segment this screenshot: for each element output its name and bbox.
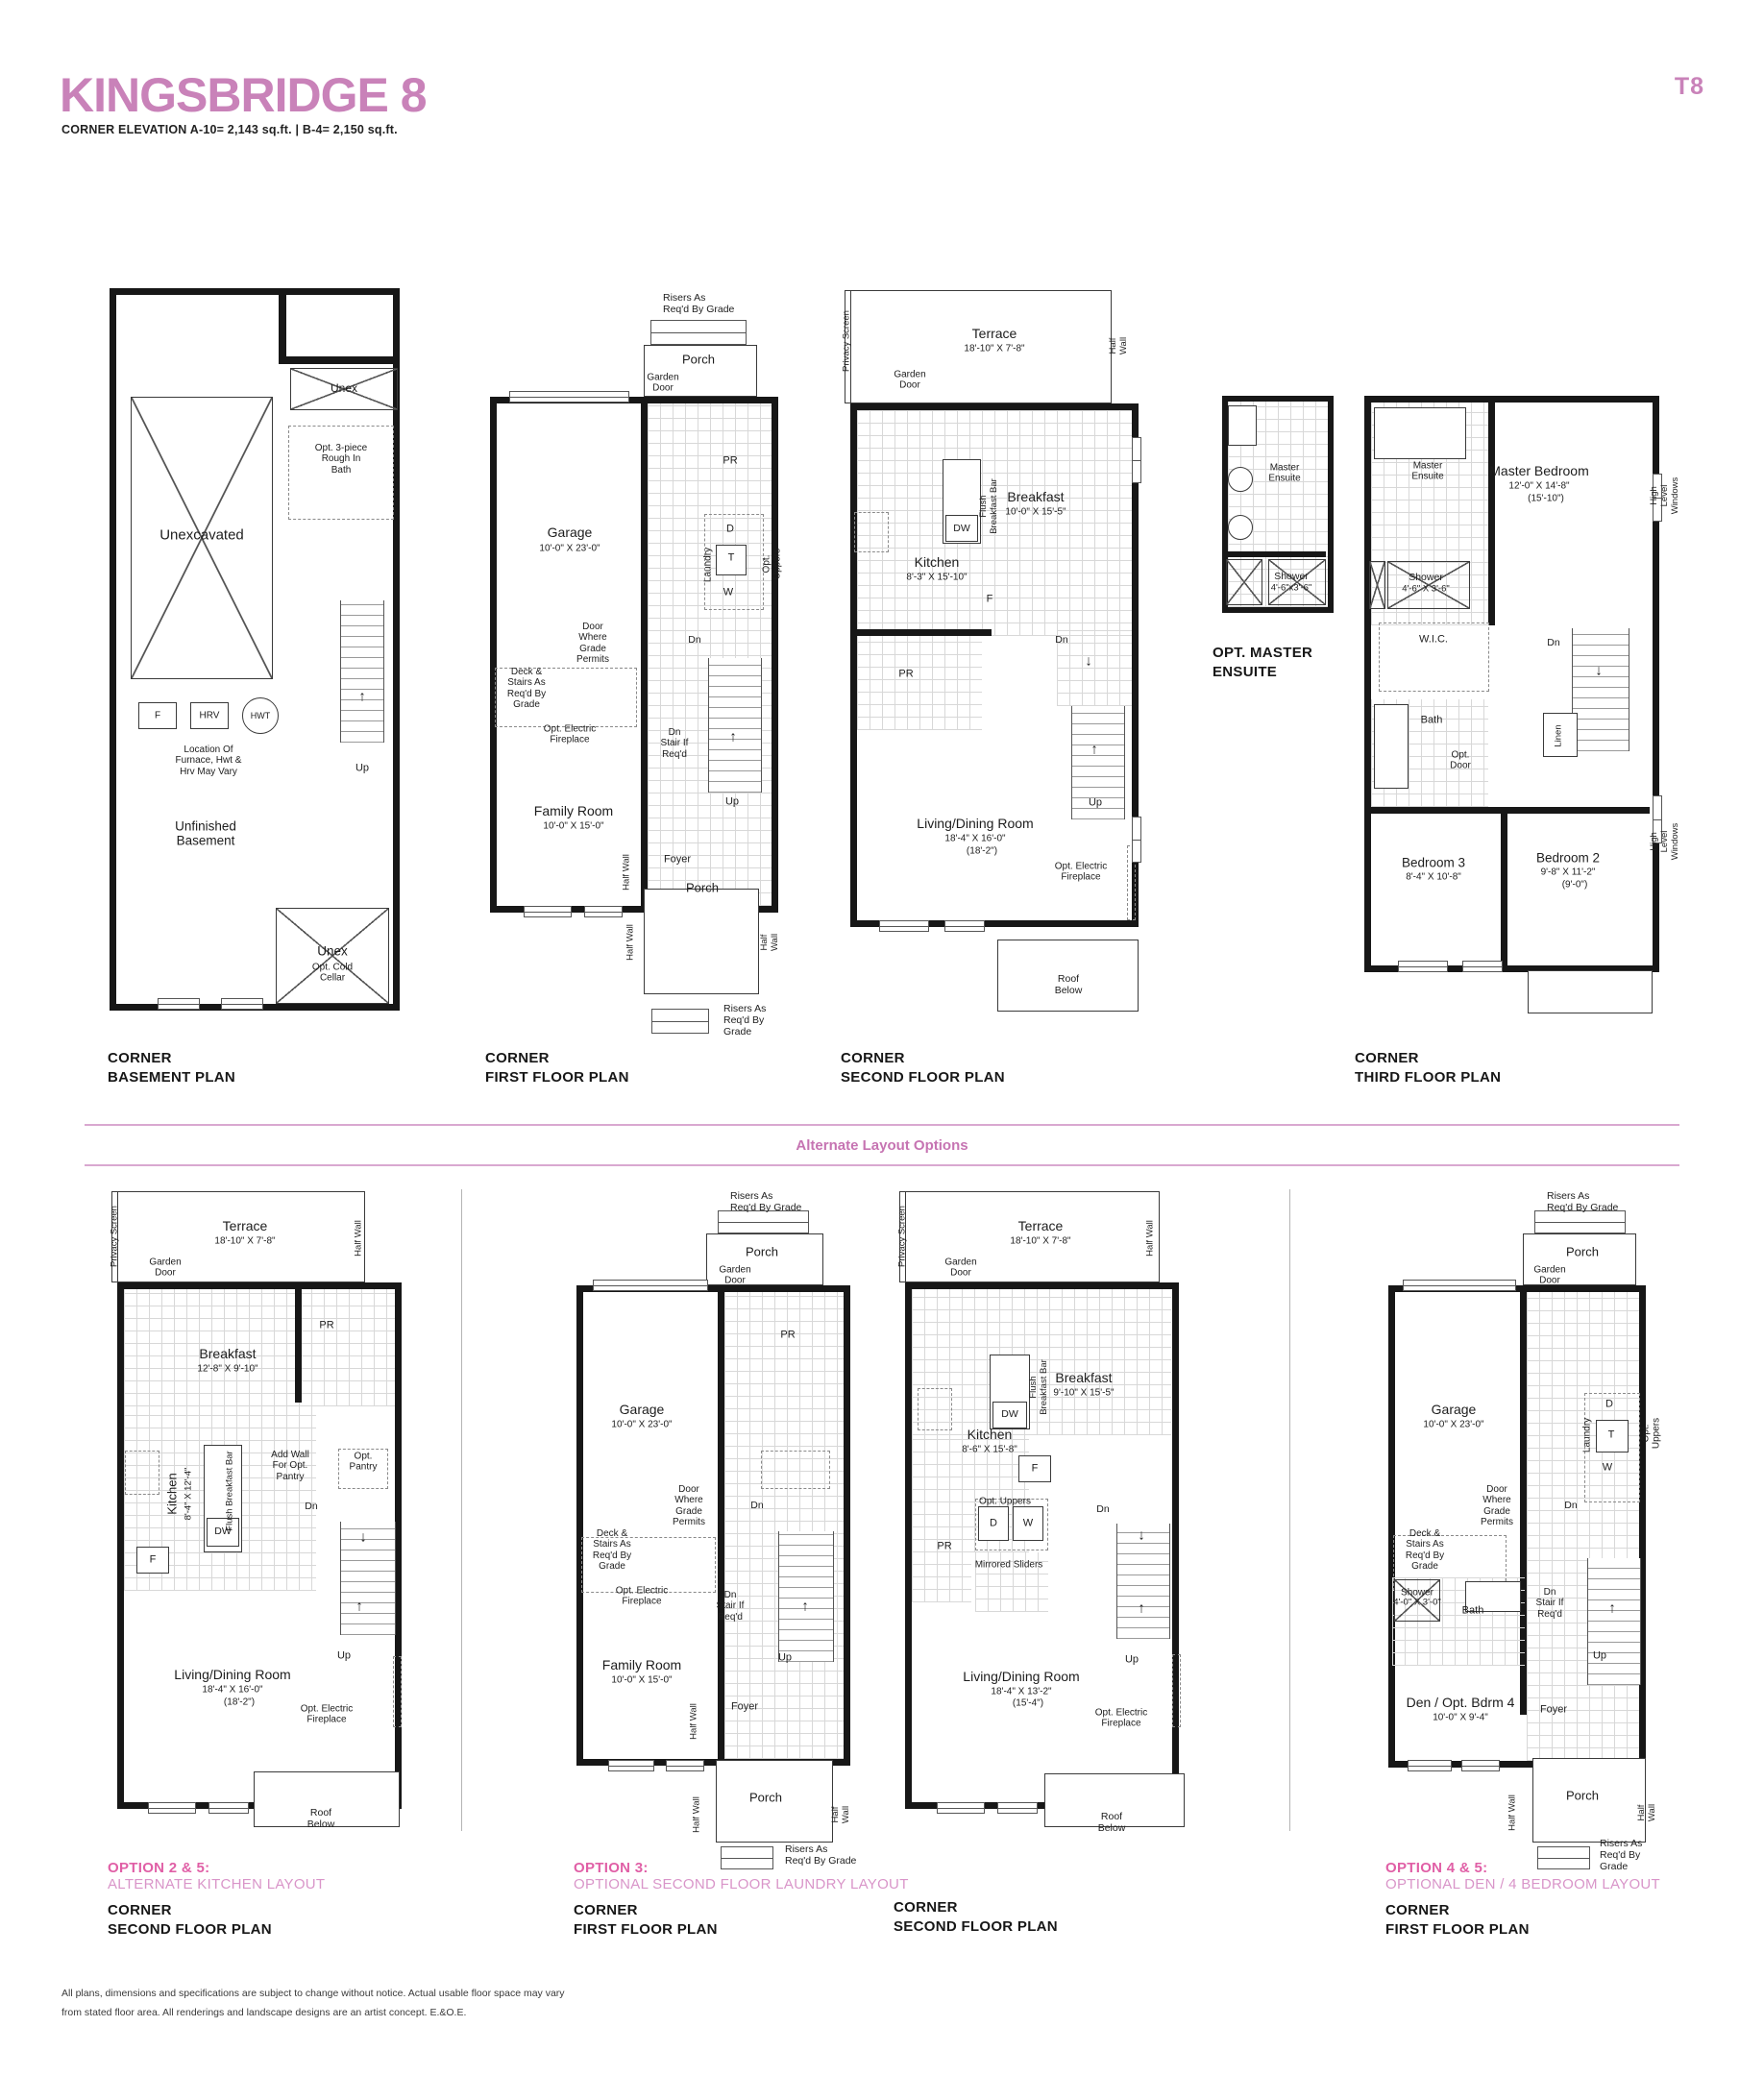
plan-annotation: 18'-4" X 16'-0" (202, 1684, 262, 1695)
fireplace-dashed (393, 1656, 402, 1727)
window (208, 1802, 249, 1814)
plan-annotation: D (990, 1518, 997, 1530)
window (997, 1802, 1038, 1814)
plan-annotation: Up (337, 1650, 351, 1663)
interior-wall (857, 629, 992, 636)
plan-annotation: Foyer (731, 1701, 758, 1714)
plan-annotation: 10'-0" X 15'-0" (611, 1674, 672, 1685)
window (221, 998, 263, 1010)
plan-annotation: Shower (1274, 572, 1309, 583)
window (937, 1802, 985, 1814)
plan-annotation: Unex (317, 943, 348, 958)
plan-caption-block: CORNER BASEMENT PLAN (108, 1049, 235, 1086)
plan-annotation: PR (723, 455, 737, 468)
plan-annotation: Door Where Grade Permits (576, 622, 609, 666)
plan-annotation: Dn (1055, 635, 1067, 647)
plan-annotation: Up (725, 796, 739, 809)
plan-annotation: Opt. Uppers (979, 1496, 1031, 1506)
plan-annotation: Dn Stair If Req'd (1536, 1587, 1564, 1620)
plan-annotation: W (1603, 1462, 1612, 1475)
plan-annotation: Opt. Uppers (1641, 1418, 1663, 1449)
plan-annotation: Opt. Door (1450, 750, 1471, 772)
plan-annotation: F (1032, 1463, 1039, 1476)
plan-annotation: Garden Door (944, 1257, 976, 1280)
plan-annotation: Up (778, 1652, 792, 1665)
plan-annotation: 8'-6" X 15'-8" (962, 1444, 1017, 1454)
plan-annotation: Privacy Screen (110, 1206, 121, 1267)
garage-door (509, 391, 629, 403)
plan-annotation: Porch (749, 1792, 782, 1806)
plan-annotation: 9'-8" X 11'-2" (1541, 867, 1596, 877)
plan-annotation: 10'-0" X 15'-5" (1005, 506, 1066, 517)
window (584, 906, 623, 917)
plan-caption-block: CORNER SECOND FLOOR PLAN (841, 1049, 1005, 1086)
plan-annotation: Terrace (1018, 1219, 1064, 1234)
plan-annotation: Opt. Uppers (762, 549, 784, 579)
plan-option-heading: OPTION 3: (574, 1860, 909, 1876)
plan-annotation: 8'-3" X 15'-10" (906, 572, 967, 582)
interior-wall (718, 1292, 724, 1759)
plan-annotation: Unexcavated (159, 526, 244, 543)
plan-annotation: F (987, 594, 993, 606)
plan-annotation: Privacy Screen (898, 1206, 909, 1267)
window (1461, 1760, 1500, 1771)
plan-annotation: DW (214, 1526, 232, 1538)
plan-annotation: (18'-2") (224, 1697, 255, 1707)
stove (854, 512, 889, 552)
tiled-floor (648, 403, 772, 906)
plan-annotation: F (155, 710, 160, 720)
plan-annotation: Roof Below (1055, 974, 1083, 997)
closet-dashed (761, 1451, 830, 1489)
interior-wall (1371, 807, 1650, 814)
plan-annotation: Shower (1409, 573, 1443, 584)
plan-annotation: Garden Door (149, 1257, 181, 1280)
plan-annotation: Up (355, 763, 369, 775)
plan-annotation: Opt. Electric Fireplace (1095, 1708, 1147, 1730)
corner-first-floor-plan: Risers As Req'd By GradePorchGarden Door… (485, 283, 788, 1042)
plan-annotation: PR (937, 1541, 951, 1553)
plan-annotation: Garage (548, 525, 593, 541)
window (1462, 961, 1503, 972)
interior-wall (295, 1289, 302, 1403)
stairs (708, 658, 762, 793)
plan-annotation: 10'-0" X 9'-4" (1433, 1712, 1488, 1722)
plan-annotation: Opt. Electric Fireplace (616, 1586, 668, 1608)
plan-annotation: Porch (1566, 1246, 1599, 1260)
plan-annotation: Add Wall For Opt. Pantry (271, 1450, 309, 1482)
plan-annotation: High Level Windows (1650, 823, 1680, 861)
window (1398, 961, 1448, 972)
plan-annotation: High Level Windows (1650, 477, 1680, 515)
plan-annotation: Garden Door (894, 370, 925, 392)
plan-annotation: Linen (1555, 724, 1565, 746)
toilet (1228, 405, 1257, 446)
stairs (340, 1522, 396, 1635)
plan-annotation: ↓ (1595, 662, 1603, 678)
plan-annotation: HRV (200, 710, 220, 720)
plan-annotation: Kitchen (166, 1473, 181, 1514)
plan-annotation: Flush Breakfast Bar (1029, 1359, 1050, 1415)
plan-annotation: Garden Door (647, 373, 678, 395)
plan-annotation: ↓ (1085, 652, 1092, 669)
plan-annotation: Terrace (223, 1219, 268, 1234)
plan-caption: CORNER FIRST FLOOR PLAN (574, 1901, 909, 1939)
plan-annotation: 18'-4" X 13'-2" (991, 1686, 1051, 1697)
stairs (778, 1531, 834, 1662)
option-3-first-floor-plan: Risers As Req'd By GradePorchGarden Door… (572, 1184, 860, 1866)
plan-annotation: Bedroom 2 (1536, 850, 1600, 865)
plan-annotation: Roof Below (307, 1808, 335, 1831)
window (1408, 1760, 1452, 1771)
linen-closet (1226, 559, 1262, 605)
plan-annotation: Dn (688, 635, 700, 647)
plan-annotation: 4'-6" X 3'-6" (1402, 585, 1449, 596)
plan-option-subheading: ALTERNATE KITCHEN LAYOUT (108, 1876, 325, 1892)
plan-annotation: PR (319, 1320, 333, 1332)
plan-annotation: Breakfast (1055, 1371, 1112, 1386)
bay-window-box (1528, 970, 1653, 1013)
plan-annotation: 10'-0" X 23'-0" (1423, 1419, 1483, 1429)
tiled-floor (912, 1510, 971, 1602)
plan-caption-block: OPTION 3: OPTIONAL SECOND FLOOR LAUNDRY … (574, 1860, 909, 1939)
window (944, 920, 985, 932)
plan-annotation: Half Wall (693, 1796, 703, 1833)
plan-caption: CORNER THIRD FLOOR PLAN (1355, 1049, 1501, 1086)
plan-annotation: W (723, 587, 733, 599)
plan-annotation: (18'-2") (967, 845, 997, 856)
plan-annotation: Deck & Stairs As Req'd By Grade (1406, 1528, 1444, 1573)
column-separator (1289, 1189, 1290, 1831)
plan-annotation: Deck & Stairs As Req'd By Grade (507, 667, 546, 711)
alternate-options-divider: Alternate Layout Options (85, 1124, 1679, 1166)
plan-annotation: Dn (750, 1501, 763, 1512)
tiled-floor (124, 1289, 395, 1406)
stairs (1572, 628, 1629, 751)
plan-annotation: DW (1001, 1409, 1018, 1421)
plan-annotation: Family Room (602, 1658, 681, 1673)
plan-annotation: Risers As Req'd By Grade (730, 1191, 801, 1214)
plan-annotation: 8'-4" X 12'-4" (184, 1468, 195, 1521)
plan-option-heading: OPTION 4 & 5: (1385, 1860, 1660, 1876)
plan-annotation: ↑ (1608, 1599, 1616, 1616)
plan-annotation: Half Wall (1637, 1803, 1658, 1822)
plan-annotation: Opt. Electric Fireplace (1055, 862, 1107, 884)
page-title: KINGSBRIDGE 8 (60, 67, 427, 123)
tub (1374, 704, 1409, 789)
plan-annotation: 4'-6"x3'-6" (1271, 584, 1312, 595)
window (1132, 437, 1141, 483)
plan-caption-block: OPTION 2 & 5: ALTERNATE KITCHEN LAYOUT C… (108, 1860, 325, 1939)
plan-annotation: 18'-10" X 7'-8" (214, 1235, 275, 1246)
plan-annotation: 18'-4" X 16'-0" (944, 833, 1005, 843)
tiled-floor (857, 636, 982, 730)
plan-annotation: Master Ensuite (1268, 463, 1300, 485)
plan-annotation: Garden Door (1533, 1265, 1565, 1287)
plan-annotation: Terrace (972, 327, 1017, 342)
plan-annotation: Foyer (1540, 1704, 1567, 1717)
plan-annotation: Opt. Pantry (350, 1452, 378, 1474)
plan-annotation: Porch (746, 1246, 778, 1260)
window (1132, 817, 1141, 863)
plan-caption-block: CORNER SECOND FLOOR PLAN (894, 1898, 1058, 1936)
plan-annotation: Half Wall (760, 934, 781, 951)
interior-wall (1226, 551, 1326, 557)
plan-annotation: ↑ (358, 688, 366, 704)
plan-annotation: DW (953, 524, 970, 535)
opt-master-ensuite-plan: Master EnsuiteShower4'-6"x3'-6" (1213, 382, 1342, 627)
plan-annotation: W (1023, 1518, 1033, 1530)
plan-annotation: Family Room (534, 804, 613, 819)
plan-annotation: HWT (251, 711, 271, 720)
plan-annotation: Porch (1566, 1790, 1599, 1804)
plan-annotation: 10'-0" X 15'-0" (543, 820, 603, 831)
plan-annotation: Unex (331, 382, 357, 396)
plan-annotation: Master Bedroom (1489, 464, 1588, 479)
plan-caption: CORNER SECOND FLOOR PLAN (841, 1049, 1005, 1086)
plan-annotation: Dn (1547, 638, 1559, 649)
porch-box (644, 889, 759, 994)
plan-caption-block: OPTION 4 & 5: OPTIONAL DEN / 4 BEDROOM L… (1385, 1860, 1660, 1939)
plan-annotation: Breakfast (199, 1347, 256, 1362)
plan-annotation: Laundry (1581, 1418, 1592, 1452)
plan-annotation: Half Wall (623, 854, 633, 891)
disclaimer-line: from stated floor area. All renderings a… (61, 2004, 565, 2023)
plan-annotation: 9'-10" X 15'-5" (1053, 1387, 1114, 1398)
divider-label: Alternate Layout Options (796, 1137, 968, 1154)
plan-annotation: Privacy Screen (843, 310, 853, 372)
plan-annotation: Bath (1462, 1605, 1484, 1618)
plan-caption: CORNER FIRST FLOOR PLAN (485, 1049, 629, 1086)
plan-annotation: ↑ (801, 1598, 809, 1614)
plan-caption: CORNER SECOND FLOOR PLAN (894, 1898, 1058, 1936)
corner-second-floor-plan: Privacy ScreenTerrace18'-10" X 7'-8"Gard… (841, 279, 1153, 1023)
plan-annotation: 12'-8" X 9'-10" (197, 1363, 257, 1374)
corner-basement-plan: UnexOpt. 3-piece Rough In BathUnexcavate… (108, 283, 425, 1023)
plan-annotation: ↓ (359, 1528, 367, 1545)
riser-steps (650, 320, 747, 345)
interior-wall (1501, 814, 1507, 967)
plan-annotation: Dn (1564, 1501, 1577, 1512)
tub (1374, 407, 1466, 459)
plan-annotation: Half Wall (831, 1806, 852, 1824)
plan-caption: CORNER SECOND FLOOR PLAN (108, 1901, 325, 1939)
plan-annotation: Half Wall (1508, 1794, 1519, 1831)
option-4-5-first-floor-plan: Risers As Req'd By GradePorchGarden Door… (1369, 1184, 1667, 1866)
interior-wall (279, 356, 400, 364)
plan-annotation: Flush Breakfast Bar (226, 1451, 236, 1530)
tiled-floor (1527, 1292, 1639, 1761)
plan-annotation: Half Wall (1109, 330, 1130, 363)
plan-annotation: PR (898, 669, 913, 681)
sink (1228, 467, 1253, 492)
plan-annotation: Breakfast (1007, 490, 1064, 505)
plan-option-subheading: OPTIONAL DEN / 4 BEDROOM LAYOUT (1385, 1876, 1660, 1892)
riser-steps (651, 1009, 709, 1034)
stairs (340, 600, 384, 743)
corner-third-floor-plan: Master EnsuiteMaster Bedroom12'-0" X 14'… (1355, 382, 1672, 1045)
plan-annotation: Opt. Cold Cellar (312, 963, 353, 985)
plan-annotation: Mirrored Sliders (975, 1559, 1043, 1570)
plan-caption: OPT. MASTER ENSUITE (1213, 644, 1312, 681)
plan-annotation: Half Wall (690, 1703, 700, 1740)
column-separator (461, 1189, 462, 1831)
plan-annotation: Garage (1432, 1403, 1477, 1418)
plan-annotation: T (1608, 1429, 1615, 1442)
plan-option-heading: OPTION 2 & 5: (108, 1860, 325, 1876)
plan-annotation: Bath (1421, 715, 1443, 727)
plan-caption-block: CORNER THIRD FLOOR PLAN (1355, 1049, 1501, 1086)
plan-caption-block: CORNER FIRST FLOOR PLAN (485, 1049, 629, 1086)
window (879, 920, 929, 932)
plan-annotation: Laundry (702, 548, 713, 582)
plan-annotation: Porch (682, 354, 715, 368)
plan-annotation: Deck & Stairs As Req'd By Grade (593, 1528, 631, 1573)
option-2-5-second-floor-plan: Privacy ScreenTerrace18'-10" X 7'-8"Gard… (108, 1184, 415, 1837)
plan-annotation: 12'-0" X 14'-8" (1508, 480, 1569, 491)
sheet-code: T8 (1675, 73, 1704, 101)
plan-annotation: Up (1593, 1650, 1606, 1663)
plan-annotation: 10'-0" X 23'-0" (539, 543, 600, 553)
interior-wall (1488, 403, 1495, 625)
fireplace-dashed (1172, 1654, 1181, 1727)
plan-annotation: ↑ (355, 1598, 363, 1614)
stairs (1587, 1558, 1641, 1685)
plan-annotation: 8'-4" X 10'-8" (1406, 871, 1461, 882)
plan-caption-block: OPT. MASTER ENSUITE (1213, 644, 1312, 681)
plan-annotation: Dn Stair If Req'd (661, 727, 689, 760)
plan-annotation: Unfinished Basement (175, 819, 236, 849)
plan-annotation: 18'-10" X 7'-8" (964, 343, 1024, 354)
window (524, 906, 572, 917)
plan-annotation: Master Ensuite (1411, 461, 1443, 483)
plan-annotation: Opt. 3-piece Rough In Bath (315, 443, 367, 476)
plan-annotation: Up (1089, 797, 1102, 810)
plan-annotation: (15'-4") (1013, 1697, 1043, 1708)
plan-annotation: Kitchen (968, 1428, 1013, 1443)
disclaimer-line: All plans, dimensions and specifications… (61, 1985, 565, 2004)
plan-annotation: PR (780, 1330, 795, 1342)
plan-option-subheading: OPTIONAL SECOND FLOOR LAUNDRY LAYOUT (574, 1876, 909, 1892)
plan-annotation: Half Wall (1146, 1220, 1157, 1257)
plan-annotation: Den / Opt. Bdrm 4 (1407, 1696, 1515, 1711)
page-subtitle: CORNER ELEVATION A-10= 2,143 sq.ft. | B-… (61, 123, 398, 136)
plan-annotation: ↓ (1138, 1526, 1145, 1543)
plan-annotation: 4'-0" X 3'-0" (1393, 1599, 1440, 1609)
plan-annotation: Bedroom 3 (1402, 855, 1465, 869)
plan-annotation: Dn (305, 1501, 317, 1513)
plan-annotation: Risers As Req'd By Grade (663, 293, 734, 316)
plan-annotation: Location Of Furnace, Hwt & Hrv May Vary (176, 745, 242, 777)
plan-caption: CORNER FIRST FLOOR PLAN (1385, 1901, 1660, 1939)
plan-annotation: (15'-10") (1528, 493, 1564, 503)
plan-annotation: Porch (686, 882, 719, 896)
plan-annotation: Risers As Req'd By Grade (1547, 1191, 1618, 1214)
tiled-floor (724, 1292, 844, 1759)
plan-annotation: T (728, 552, 735, 565)
plan-annotation: Door Where Grade Permits (673, 1484, 705, 1528)
garage-door (1403, 1280, 1516, 1291)
disclaimer: All plans, dimensions and specifications… (61, 1985, 565, 2023)
plan-annotation: Foyer (664, 854, 691, 867)
plan-annotation: 10'-0" X 23'-0" (611, 1419, 672, 1429)
stove (918, 1388, 952, 1430)
option-3-second-floor-plan: Privacy ScreenTerrace18'-10" X 7'-8"Gard… (894, 1184, 1211, 1837)
plan-annotation: F (150, 1554, 157, 1567)
plan-annotation: D (1605, 1399, 1613, 1411)
plan-annotation: ↑ (729, 728, 737, 745)
plan-annotation: (9'-0") (1562, 879, 1588, 890)
plan-annotation: Opt. Electric Fireplace (544, 724, 596, 746)
plan-annotation: W.I.C. (1419, 634, 1448, 647)
plan-annotation: Living/Dining Room (174, 1668, 290, 1683)
plan-annotation: Living/Dining Room (963, 1670, 1079, 1685)
plan-annotation: 18'-10" X 7'-8" (1010, 1235, 1070, 1246)
window (608, 1760, 654, 1771)
window (148, 1802, 196, 1814)
plan-annotation: Kitchen (915, 555, 960, 571)
plan-annotation: Dn Stair If Req'd (717, 1590, 745, 1623)
plan-annotation: Flush Breakfast Bar (979, 478, 1000, 534)
plan-annotation: Risers As Req'd By Grade (723, 1004, 788, 1038)
plan-annotation: ↑ (1138, 1599, 1145, 1616)
interior-wall (641, 403, 648, 906)
plan-annotation: ↑ (1090, 741, 1098, 757)
plan-annotation: Roof Below (1098, 1812, 1126, 1835)
plan-annotation: Garden Door (719, 1265, 750, 1287)
plan-annotation: Door Where Grade Permits (1481, 1484, 1513, 1528)
window (666, 1760, 704, 1771)
plan-caption: CORNER BASEMENT PLAN (108, 1049, 235, 1086)
window (158, 998, 200, 1010)
plan-annotation: D (726, 524, 734, 536)
linen-closet (1369, 561, 1385, 609)
plan-annotation: Half Wall (626, 924, 637, 961)
plan-annotation: Up (1125, 1654, 1139, 1667)
interior-wall (279, 293, 286, 362)
sink (1228, 515, 1253, 540)
plan-annotation: Dn (1096, 1504, 1109, 1516)
stove (125, 1451, 159, 1495)
plan-annotation: Opt. Electric Fireplace (301, 1704, 353, 1726)
plan-annotation: Living/Dining Room (917, 817, 1033, 832)
plan-annotation: Garage (620, 1403, 665, 1418)
plan-annotation: Half Wall (355, 1220, 365, 1257)
garage-door (593, 1280, 708, 1291)
